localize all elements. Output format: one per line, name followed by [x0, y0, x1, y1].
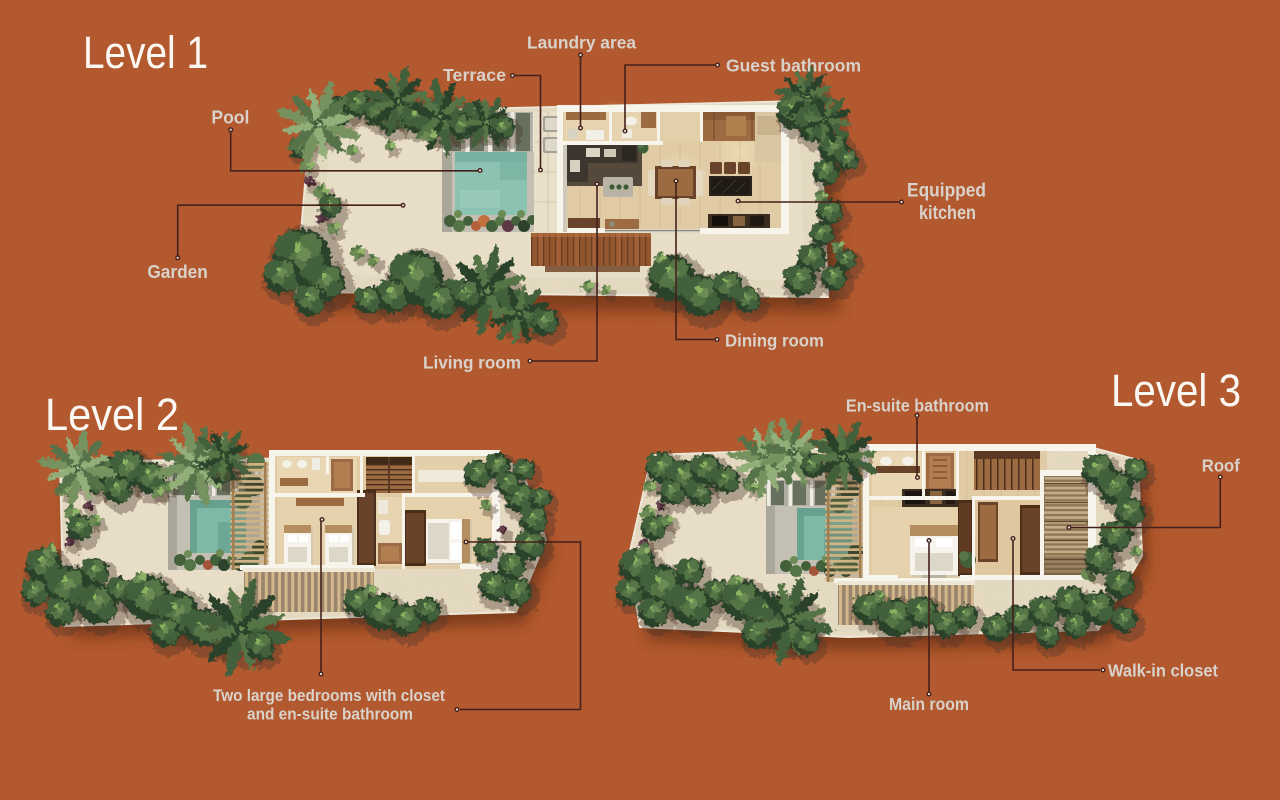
- svg-text:Level 3: Level 3: [1111, 365, 1241, 416]
- svg-text:Level 1: Level 1: [83, 27, 208, 78]
- svg-text:Equipped: Equipped: [907, 181, 986, 202]
- svg-text:Main room: Main room: [889, 694, 969, 714]
- svg-text:Roof: Roof: [1202, 456, 1240, 476]
- svg-text:Level 2: Level 2: [45, 389, 179, 440]
- svg-text:Pool: Pool: [211, 107, 249, 128]
- svg-text:Dining room: Dining room: [725, 331, 824, 351]
- svg-text:Living room: Living room: [423, 353, 521, 373]
- svg-text:Two large bedrooms with closet: Two large bedrooms with closet: [213, 686, 445, 705]
- svg-text:and en-suite bathroom: and en-suite bathroom: [247, 705, 413, 724]
- svg-text:Terrace: Terrace: [443, 65, 506, 85]
- svg-text:Laundry area: Laundry area: [527, 33, 636, 53]
- svg-text:kitchen: kitchen: [919, 203, 976, 224]
- svg-text:Guest bathroom: Guest bathroom: [726, 56, 861, 76]
- svg-text:Garden: Garden: [147, 262, 208, 282]
- svg-text:En-suite bathroom: En-suite bathroom: [846, 396, 989, 416]
- svg-text:Walk-in closet: Walk-in closet: [1108, 661, 1218, 681]
